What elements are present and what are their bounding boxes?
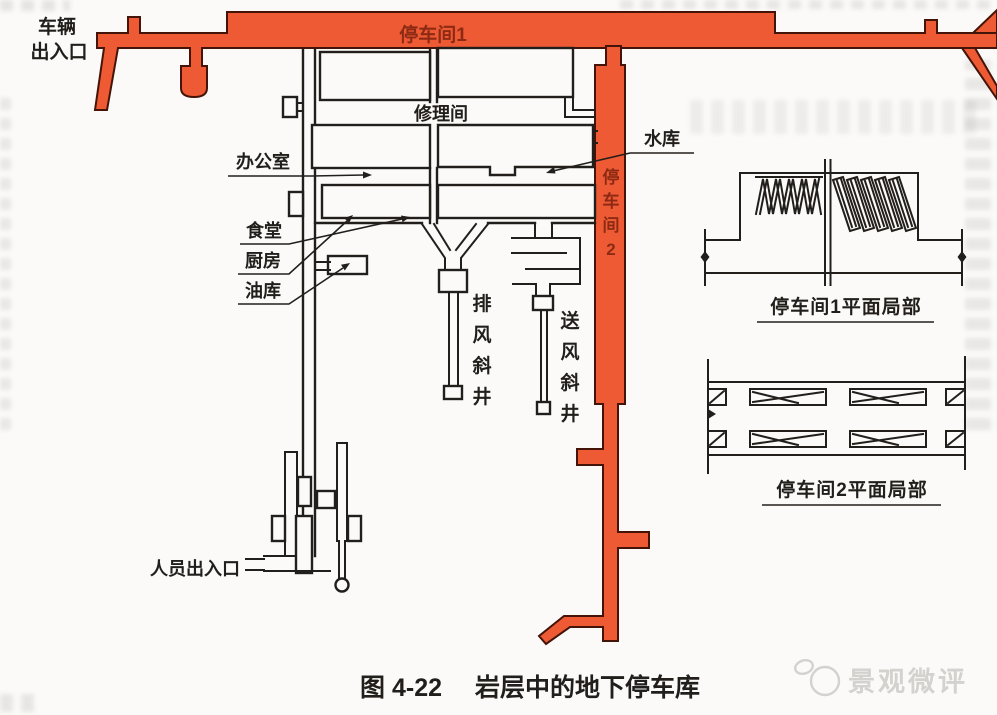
figure-caption: 图 4-22 岩层中的地下停车库 [360, 673, 700, 702]
label-supply-shaft-char: 送 [560, 309, 580, 332]
exhaust-funnel [422, 224, 488, 270]
room-top-west [320, 52, 430, 100]
cluster-room-a [298, 477, 311, 506]
label-kitchen: 厨房 [245, 250, 281, 271]
exhaust-bulge [439, 270, 467, 292]
room-mid-west [312, 125, 430, 168]
label-exhaust-shaft-char: 排 [472, 292, 491, 315]
room-low-west [322, 185, 430, 218]
label-supply-shaft-char: 斜 [559, 371, 579, 394]
office-leader [228, 175, 364, 176]
label-parking-room-2-char: 车 [603, 191, 620, 211]
detail1-marker-west [701, 251, 710, 263]
label-parking-room-2-char: 停 [603, 167, 620, 187]
detail2-marker-west [708, 409, 716, 419]
supply-baffle-box [512, 238, 580, 284]
cluster-room-b [317, 491, 335, 508]
cluster-room-center [296, 516, 312, 573]
label-vehicle-entrance: 车辆 [38, 15, 76, 38]
exit-label-ticks [246, 559, 264, 570]
exhaust-shaft-walls [449, 292, 458, 386]
label-exhaust-shaft-char: 井 [472, 386, 491, 408]
detail1-cars-perpendicular [756, 177, 822, 214]
supply-shaft-stem [535, 223, 552, 238]
watermark-logo-icon [793, 658, 814, 676]
vehicle-ramp-right [962, 48, 997, 99]
spine-alcove-upper [283, 97, 297, 117]
cluster-shaft-bulb [336, 579, 349, 592]
watermark: 景观微评 [793, 658, 968, 697]
label-exhaust-shaft: 排 风 斜 井 [471, 292, 491, 408]
label-supply-shaft-char: 风 [560, 341, 579, 363]
exhaust-shaft-foot [444, 386, 462, 399]
cluster-bump-east [348, 516, 361, 541]
supply-shaft-foot [537, 402, 550, 414]
corridor-corner-wedge [973, 10, 997, 33]
detail1-cars-angled [833, 177, 916, 231]
detail2-cars-row-south [708, 431, 965, 447]
supply-bulge [533, 296, 553, 310]
supply-neck [536, 284, 550, 296]
label-exhaust-shaft-char: 风 [472, 324, 491, 346]
label-parking-room-2-char: 2 [606, 240, 615, 259]
room-top-east-step [565, 97, 595, 117]
label-canteen: 食堂 [245, 220, 282, 241]
watermark-label: 景观微评 [848, 667, 968, 697]
label-repair-room: 修理间 [413, 103, 468, 124]
detail2-caption: 停车间2平面局部 [776, 478, 928, 501]
detail2-cars-row-north [708, 389, 965, 405]
supply-shaft-walls [541, 310, 547, 402]
label-parking-room-1: 停车间1 [399, 23, 467, 46]
label-oil-depot: 油库 [245, 280, 281, 301]
label-office: 办公室 [236, 151, 290, 172]
cluster-bump-west [272, 516, 285, 541]
service-rooms [283, 48, 597, 274]
detail1-caption: 停车间1平面局部 [770, 295, 922, 318]
spine-alcove-mid [289, 192, 303, 216]
room-low-east [438, 185, 595, 218]
figure-page: 车辆 出入口 停车间1 修理间 办公室 水库 食堂 厨房 油库 人员出入口 停 … [0, 0, 997, 715]
figure-title: 岩层中的地下停车库 [474, 673, 700, 702]
office-arrow [363, 172, 372, 179]
room-top-east [438, 48, 573, 97]
figure-number: 图 4-22 [360, 674, 442, 702]
label-supply-shaft-char: 井 [560, 403, 579, 425]
detail1-center-wall [825, 160, 831, 285]
label-exhaust-shaft-char: 斜 [471, 354, 491, 377]
watermark-logo-icon [811, 667, 839, 695]
label-personnel-entrance: 人员出入口 [150, 558, 240, 579]
label-supply-shaft: 送 风 斜 井 [559, 309, 580, 425]
detail1-marker-east [958, 251, 967, 263]
detail-view-parking-2: 停车间2平面局部 [708, 357, 965, 505]
cluster-right-shaft [337, 443, 347, 578]
detail-view-parking-1: 停车间1平面局部 [701, 160, 967, 322]
label-reservoir: 水库 [644, 128, 680, 149]
label-vehicle-entrance: 出入口 [30, 40, 87, 63]
label-parking-room-2-char: 间 [603, 215, 620, 235]
underground-garage-plan: 车辆 出入口 停车间1 修理间 办公室 水库 食堂 厨房 油库 人员出入口 停 … [0, 0, 997, 715]
